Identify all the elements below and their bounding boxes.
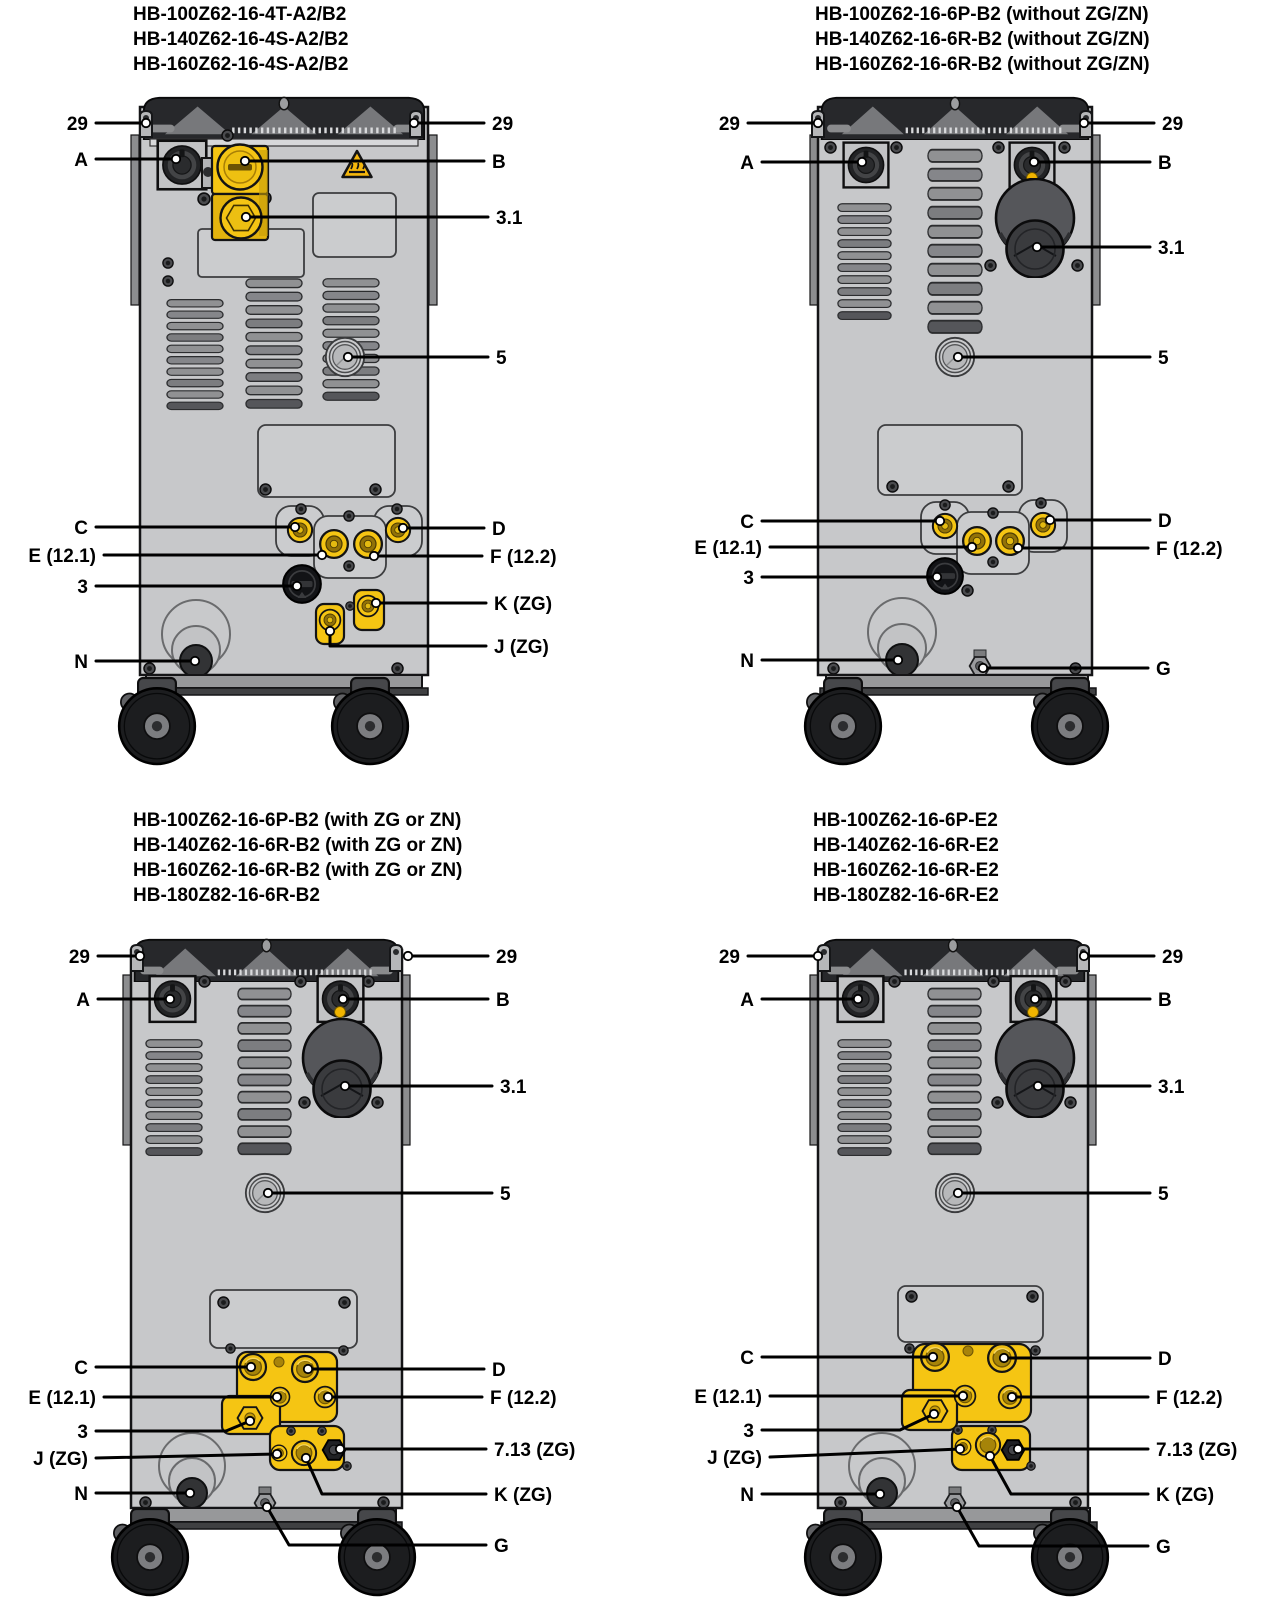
screw <box>1027 1462 1036 1471</box>
screw <box>163 276 173 286</box>
callout-label: 29 <box>1162 114 1183 135</box>
callout-label: 3.1 <box>1158 1077 1185 1098</box>
cap-b-slot <box>228 164 252 171</box>
diagram-page: HB-100Z62-16-4T-A2/B2 HB-140Z62-16-4S-A2… <box>0 0 1280 1600</box>
valve-block-b <box>202 145 268 241</box>
model-number-line: HB-140Z62-16-6R-E2 <box>813 833 999 858</box>
callout-label: C <box>74 1358 88 1379</box>
screw <box>988 557 998 567</box>
callout-29-right: 29 <box>1080 114 1183 135</box>
screw <box>299 1097 310 1108</box>
screw <box>392 504 402 514</box>
screw <box>199 976 210 987</box>
callout-label: G <box>494 1536 509 1557</box>
model-title: HB-100Z62-16-6P-B2 (without ZG/ZN) HB-14… <box>815 2 1150 77</box>
callout-29-left: 29 <box>719 947 822 968</box>
callout-29-right: 29 <box>404 947 517 968</box>
model-title: HB-100Z62-16-6P-E2 HB-140Z62-16-6R-E2 HB… <box>813 808 999 908</box>
model-number-line: HB-140Z62-16-4S-A2/B2 <box>133 27 348 52</box>
variant-panel-bottom-left: HB-100Z62-16-6P-B2 (with ZG or ZN) HB-14… <box>0 790 640 1600</box>
callout-label: 3.1 <box>500 1077 527 1098</box>
callout-29-right: 29 <box>1080 947 1183 968</box>
callout-label: D <box>492 519 506 540</box>
model-title: HB-100Z62-16-4T-A2/B2 HB-140Z62-16-4S-A2… <box>133 2 348 77</box>
callout-label: B <box>492 152 506 173</box>
screw <box>198 193 210 205</box>
callout-label: N <box>740 651 754 672</box>
callout-label: 3.1 <box>496 208 523 229</box>
variant-panel-top-right: HB-100Z62-16-6P-B2 (without ZG/ZN) HB-14… <box>640 0 1280 790</box>
callout-label: F (12.2) <box>490 1388 557 1409</box>
screw <box>985 260 996 271</box>
screw <box>962 585 973 596</box>
top-cap <box>144 97 424 140</box>
screw <box>954 1426 963 1435</box>
screw <box>1059 142 1070 153</box>
screw <box>906 1291 917 1302</box>
callout-label: D <box>1158 1349 1172 1370</box>
device-rear-view <box>112 939 415 1595</box>
callout-label: F (12.2) <box>1156 1388 1223 1409</box>
device-rear-view <box>805 939 1108 1595</box>
screw <box>988 976 999 987</box>
coupling-e-12-1 <box>963 527 991 555</box>
screw <box>339 1346 348 1355</box>
screw <box>363 976 374 987</box>
model-number-line: HB-140Z62-16-6R-B2 (with ZG or ZN) <box>133 833 462 858</box>
callout-label: K (ZG) <box>494 594 552 615</box>
screw <box>1070 1497 1081 1508</box>
device-rear-view <box>119 97 437 764</box>
power-connector-a <box>158 141 207 190</box>
screw <box>296 504 306 514</box>
screw <box>343 1462 352 1471</box>
callout-label: 3 <box>77 577 88 598</box>
screw <box>940 500 950 510</box>
screw <box>318 1427 327 1436</box>
callout-label: 29 <box>719 114 740 135</box>
screw <box>344 561 354 571</box>
callout-label: 3 <box>743 568 754 589</box>
callout-label: E (12.1) <box>28 546 96 567</box>
callout-label: A <box>740 990 754 1011</box>
screw <box>346 602 355 611</box>
screw <box>1027 1291 1038 1302</box>
screw <box>1031 1346 1040 1355</box>
screw <box>825 142 836 153</box>
callout-label: 5 <box>500 1184 511 1205</box>
screw <box>392 663 403 674</box>
filter-3 <box>283 565 321 603</box>
callout-label: E (12.1) <box>694 538 762 559</box>
callout-label: J (ZG) <box>707 1448 762 1469</box>
callout-label: 29 <box>492 114 513 135</box>
callout-label: N <box>74 652 88 673</box>
screw <box>260 484 271 495</box>
callout-label: C <box>740 1348 754 1369</box>
base-frame <box>826 675 1088 688</box>
callout-label: E (12.1) <box>694 1387 762 1408</box>
model-number-line: HB-100Z62-16-4T-A2/B2 <box>133 2 348 27</box>
connector-b-pin <box>1028 1007 1039 1018</box>
service-door <box>898 1286 1043 1342</box>
screw <box>144 663 155 674</box>
screw <box>1072 260 1083 271</box>
callout-label: 7.13 (ZG) <box>494 1440 575 1461</box>
screw <box>992 1097 1003 1108</box>
screw <box>889 976 900 987</box>
callout-label: F (12.2) <box>490 547 557 568</box>
model-number-line: HB-160Z62-16-6R-E2 <box>813 858 999 883</box>
callout-label: N <box>74 1484 88 1505</box>
callout-label: A <box>740 153 754 174</box>
connector-b-pin <box>335 1007 346 1018</box>
screw <box>287 1427 296 1436</box>
screw <box>1003 481 1014 492</box>
screw <box>1036 498 1046 508</box>
model-number-line: HB-160Z62-16-6R-B2 (with ZG or ZN) <box>133 858 462 883</box>
screw <box>1065 1097 1076 1108</box>
model-title: HB-100Z62-16-6P-B2 (with ZG or ZN) HB-14… <box>133 808 462 908</box>
screw <box>988 508 998 518</box>
callout-label: 5 <box>1158 348 1169 369</box>
screw <box>163 258 173 268</box>
model-number-line: HB-100Z62-16-6P-B2 (without ZG/ZN) <box>815 2 1150 27</box>
screw <box>218 1297 229 1308</box>
callout-label: 5 <box>1158 1184 1169 1205</box>
callout-label: 5 <box>496 348 507 369</box>
callout-label: 29 <box>69 947 90 968</box>
screw <box>344 511 354 521</box>
callout-label: D <box>492 1360 506 1381</box>
callout-label: C <box>74 518 88 539</box>
callout-label: B <box>1158 990 1172 1011</box>
latch-29-right <box>390 945 402 971</box>
model-number-line: HB-100Z62-16-6P-B2 (with ZG or ZN) <box>133 808 462 833</box>
callout-label: 3 <box>77 1422 88 1443</box>
model-number-line: HB-100Z62-16-6P-E2 <box>813 808 999 833</box>
callout-label: F (12.2) <box>1156 539 1223 560</box>
service-door <box>878 425 1022 495</box>
callout-label: J (ZG) <box>494 637 549 658</box>
callout-label: A <box>76 990 90 1011</box>
callout-label: C <box>740 512 754 533</box>
screw <box>887 481 898 492</box>
screw <box>905 1344 914 1353</box>
callout-label: K (ZG) <box>494 1485 552 1506</box>
variant-panel-top-left: HB-100Z62-16-4T-A2/B2 HB-140Z62-16-4S-A2… <box>0 0 640 790</box>
callout-29-left: 29 <box>67 114 150 135</box>
model-number-line: HB-160Z62-16-6R-B2 (without ZG/ZN) <box>815 52 1150 77</box>
model-number-line: HB-180Z82-16-6R-E2 <box>813 883 999 908</box>
screw <box>828 663 839 674</box>
callout-label: K (ZG) <box>1156 1485 1214 1506</box>
service-door <box>210 1290 357 1348</box>
callout-label: 3 <box>743 1421 754 1442</box>
screw <box>993 142 1004 153</box>
screw <box>378 1497 389 1508</box>
callout-label: 29 <box>67 114 88 135</box>
model-number-line: HB-180Z82-16-6R-B2 <box>133 883 462 908</box>
callout-label: J (ZG) <box>33 1449 88 1470</box>
model-number-line: HB-160Z62-16-4S-A2/B2 <box>133 52 348 77</box>
callout-label: 29 <box>496 947 517 968</box>
manifold-hole <box>274 1357 284 1367</box>
callout-label: N <box>740 1485 754 1506</box>
screw <box>339 1297 350 1308</box>
screw <box>222 130 233 141</box>
callout-label: D <box>1158 511 1172 532</box>
variant-panel-bottom-right: HB-100Z62-16-6P-E2 HB-140Z62-16-6R-E2 HB… <box>640 790 1280 1600</box>
screw <box>372 1097 383 1108</box>
callout-label: B <box>496 990 510 1011</box>
callout-label: 7.13 (ZG) <box>1156 1440 1237 1461</box>
callout-label: A <box>74 150 88 171</box>
callout-label: G <box>1156 1537 1171 1558</box>
callout-label: E (12.1) <box>28 1388 96 1409</box>
callout-label: 29 <box>1162 947 1183 968</box>
screw <box>140 1497 151 1508</box>
manifold-hole <box>963 1346 973 1356</box>
callout-label: 29 <box>719 947 740 968</box>
screw <box>835 1497 846 1508</box>
access-panel <box>313 193 396 257</box>
screw <box>1060 976 1071 987</box>
callout-label: 3.1 <box>1158 238 1185 259</box>
screw <box>226 1344 235 1353</box>
screw <box>891 142 902 153</box>
model-number-line: HB-140Z62-16-6R-B2 (without ZG/ZN) <box>815 27 1150 52</box>
callout-label: G <box>1156 659 1171 680</box>
callout-29-left: 29 <box>719 114 822 135</box>
top-cap <box>822 97 1089 140</box>
callout-label: B <box>1158 153 1172 174</box>
screw <box>370 484 381 495</box>
device-rear-view <box>805 97 1108 764</box>
screw <box>295 976 306 987</box>
